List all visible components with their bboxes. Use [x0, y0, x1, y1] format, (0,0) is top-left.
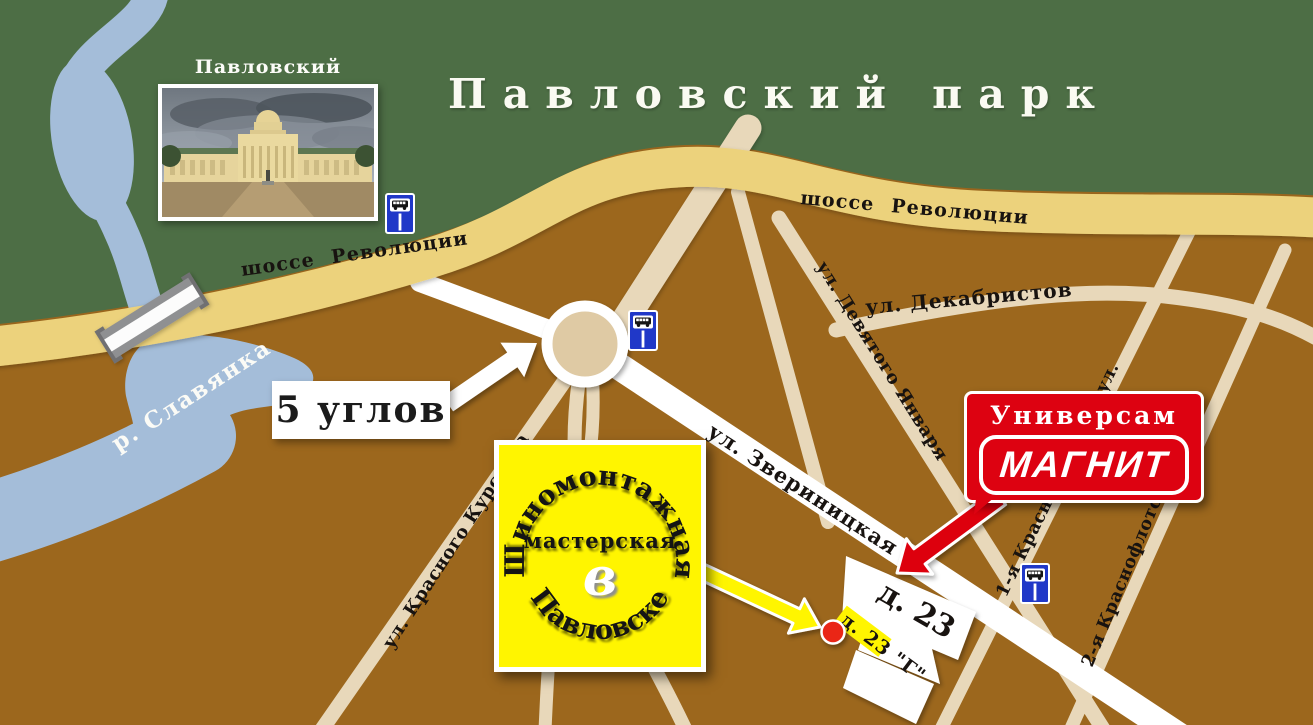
bus-stop-icon[interactable]: [385, 193, 415, 234]
tire-shop-sign[interactable]: Шиномонтажная мастерская в Павловске: [494, 440, 706, 672]
magnit-univermag-label: Универсам: [967, 401, 1201, 430]
palace-illustration: [162, 88, 374, 217]
five-corners-text: 5 углов: [275, 389, 446, 431]
magnit-sign[interactable]: Универсам МАГНИТ: [964, 391, 1204, 503]
tire-shop-badge: Шиномонтажная мастерская в Павловске: [499, 445, 701, 667]
magnit-logo: МАГНИТ: [998, 444, 1171, 486]
five-corners-label: 5 углов: [272, 381, 450, 439]
magnit-logo-box: МАГНИТ: [979, 435, 1189, 495]
location-marker-icon[interactable]: [822, 621, 845, 644]
shop-sign-preposition: в: [583, 547, 617, 608]
park-title: Павловский парк: [448, 70, 1108, 118]
palace-photo[interactable]: [158, 84, 378, 221]
bus-stop-icon[interactable]: [628, 310, 658, 351]
bus-stop-icon[interactable]: [1020, 563, 1050, 604]
pavlovsk-map: шоссе Революции шоссе Революции р. Славя…: [0, 0, 1313, 725]
roundabout-five-corners: [547, 306, 623, 382]
